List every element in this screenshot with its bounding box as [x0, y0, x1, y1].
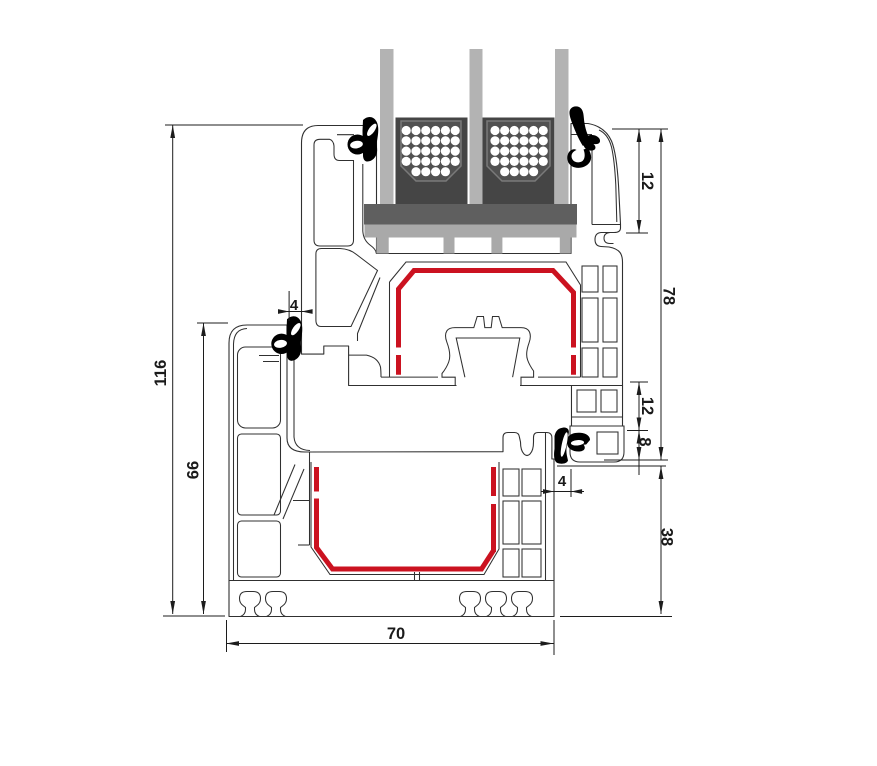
- svg-text:4: 4: [558, 473, 567, 490]
- svg-text:66: 66: [185, 461, 203, 479]
- svg-text:38: 38: [658, 528, 676, 546]
- svg-text:4: 4: [290, 297, 299, 314]
- svg-text:12: 12: [638, 172, 656, 190]
- svg-text:116: 116: [152, 360, 170, 387]
- svg-text:78: 78: [660, 287, 678, 305]
- svg-text:12: 12: [638, 397, 656, 415]
- svg-text:70: 70: [387, 625, 405, 643]
- svg-text:8: 8: [636, 437, 654, 446]
